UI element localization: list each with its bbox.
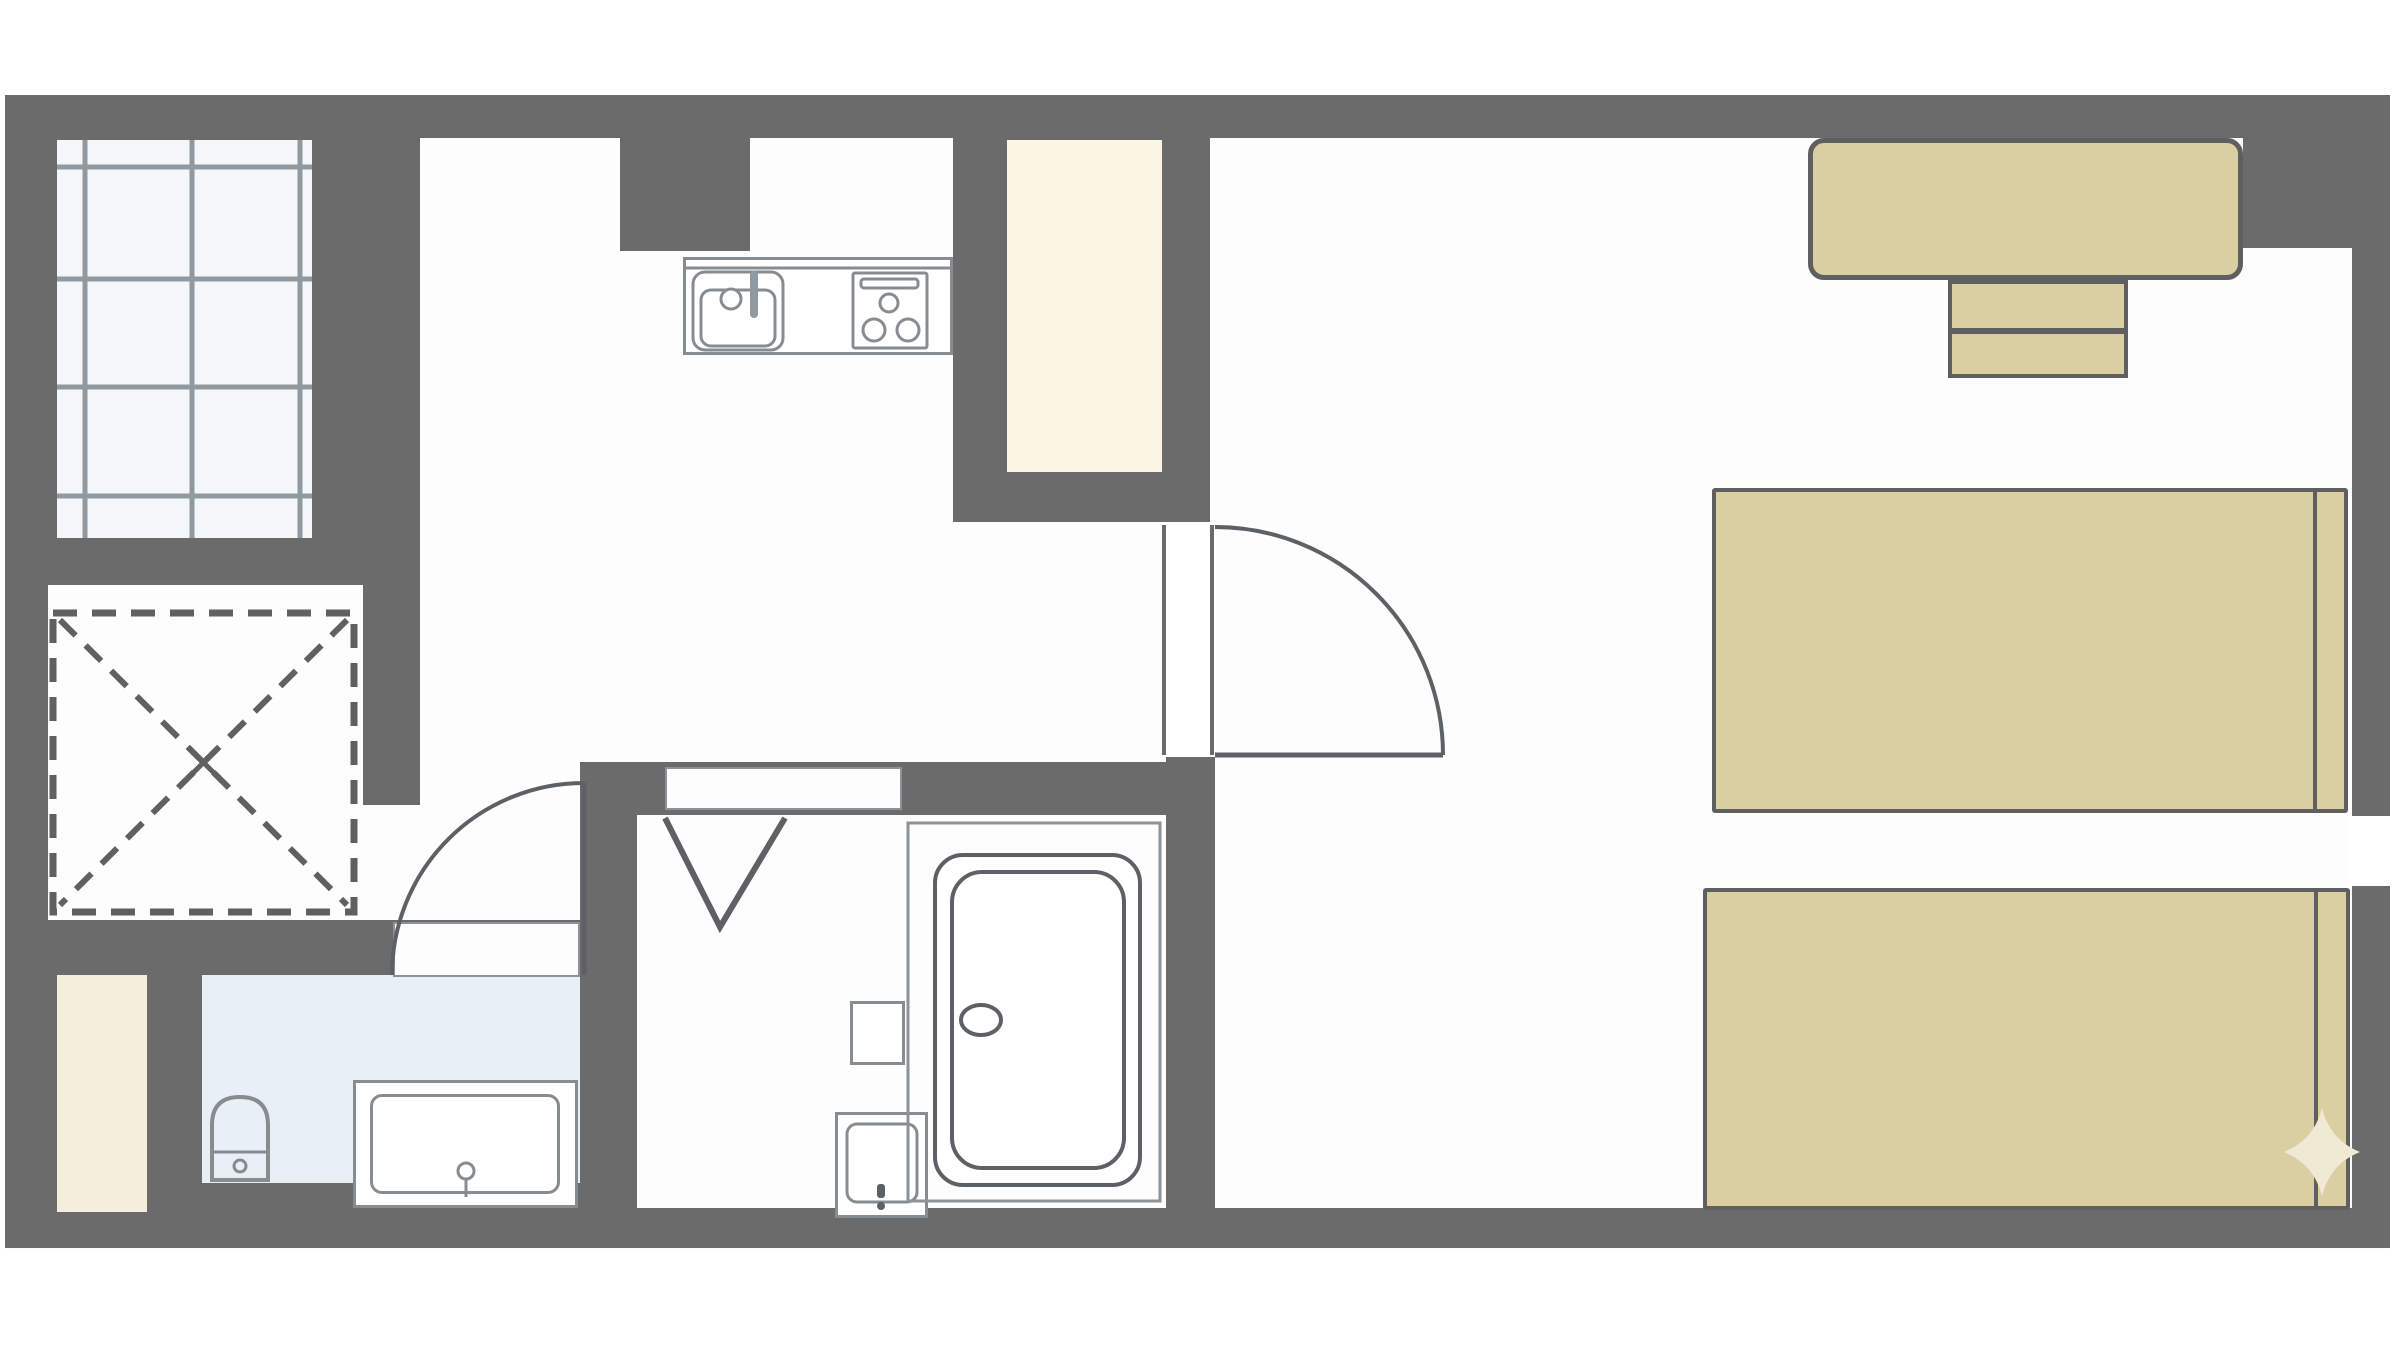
- bedroom-door-opening: [1162, 522, 1215, 757]
- bath-wall-box: [850, 1001, 905, 1065]
- window-pane: [57, 140, 312, 538]
- floor-plan: [0, 0, 2400, 1350]
- closet-interior: [1007, 140, 1162, 472]
- beds-gap-white: [2348, 816, 2390, 886]
- chair-upper: [1948, 280, 2128, 332]
- wall-corner-topright: [2243, 95, 2387, 248]
- entrance-mat: [57, 975, 147, 1212]
- wall-kitchen-block: [620, 95, 750, 251]
- kitchen-counter: [683, 257, 953, 355]
- washroom-sliding-door: [665, 767, 902, 810]
- toilet-door-opening: [393, 922, 580, 977]
- wall-window-stub: [363, 585, 420, 805]
- chair-lower: [1948, 330, 2128, 378]
- washbasin: [835, 1112, 928, 1218]
- wall-right: [2352, 95, 2390, 1248]
- bed-2: [1703, 888, 2350, 1210]
- wall-washroom-west: [580, 815, 637, 1208]
- desk: [1808, 138, 2243, 280]
- vanity-inner: [370, 1094, 560, 1194]
- wall-bottom: [5, 1208, 2390, 1248]
- wall-east: [1166, 757, 1215, 1208]
- bed-1: [1712, 488, 2348, 813]
